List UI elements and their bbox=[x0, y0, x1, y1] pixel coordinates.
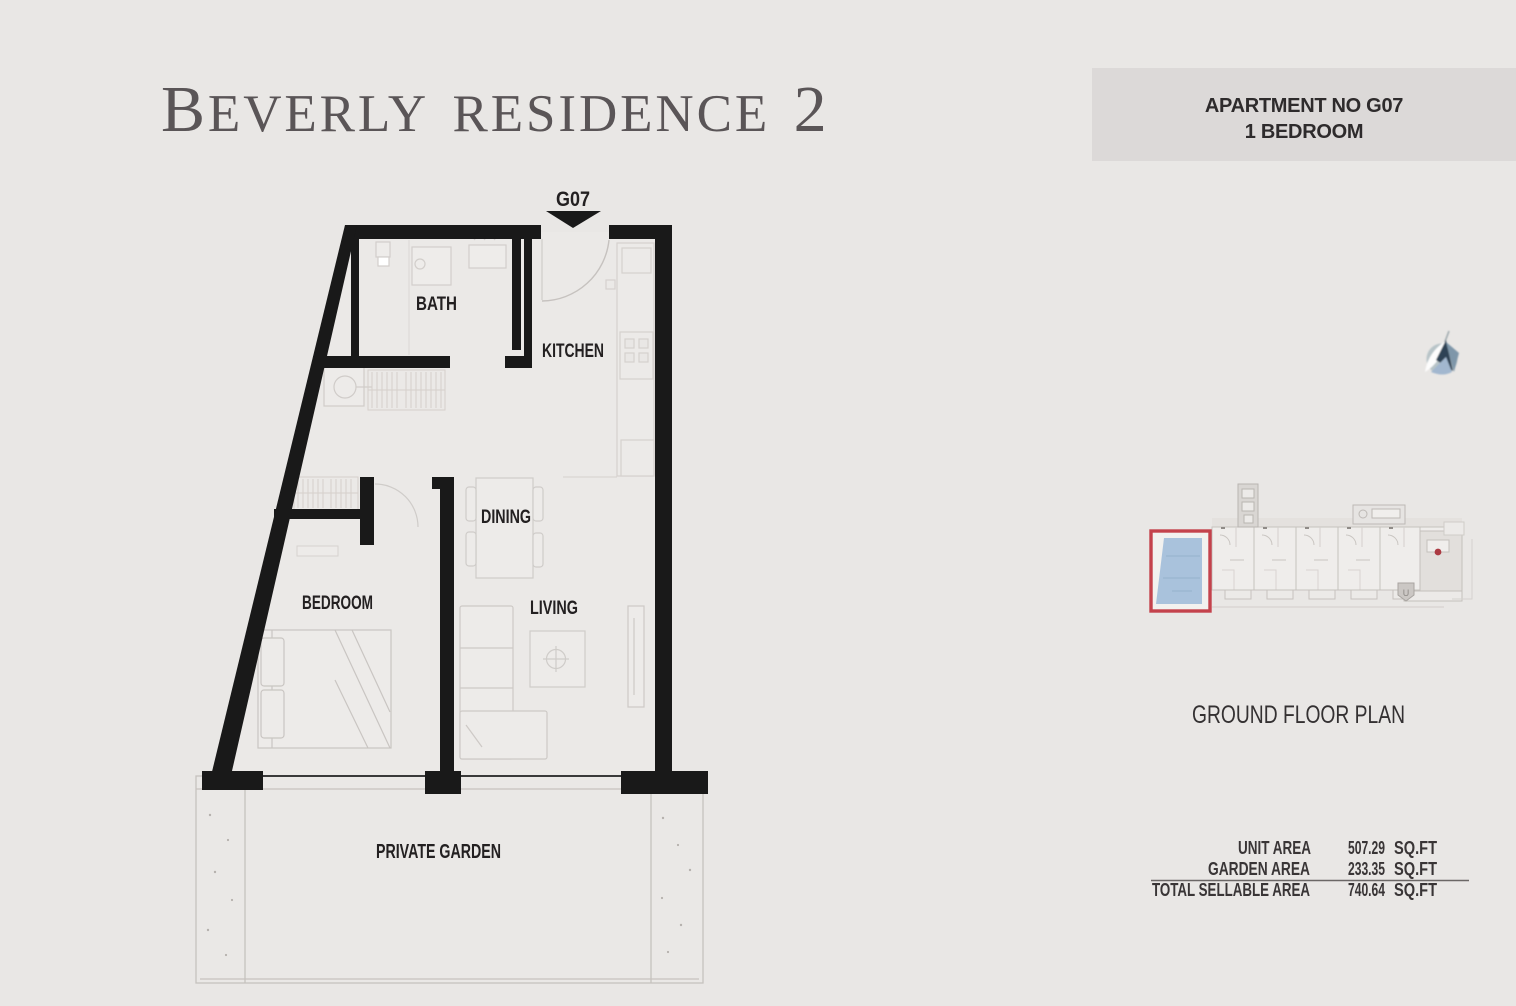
svg-text:PRIVATE GARDEN: PRIVATE GARDEN bbox=[376, 841, 501, 863]
svg-text:SQ.FT: SQ.FT bbox=[1394, 838, 1437, 858]
svg-text:SQ.FT: SQ.FT bbox=[1394, 859, 1437, 879]
svg-text:233.35: 233.35 bbox=[1348, 859, 1385, 879]
svg-text:740.64: 740.64 bbox=[1348, 880, 1385, 900]
svg-text:U: U bbox=[1403, 588, 1410, 598]
svg-text:DINING: DINING bbox=[481, 507, 531, 528]
svg-text:GROUND FLOOR PLAN: GROUND FLOOR PLAN bbox=[1192, 701, 1405, 729]
svg-text:LIVING: LIVING bbox=[530, 598, 578, 619]
svg-text:UNIT AREA: UNIT AREA bbox=[1238, 838, 1311, 858]
svg-text:SQ.FT: SQ.FT bbox=[1394, 880, 1437, 900]
svg-text:TOTAL SELLABLE AREA: TOTAL SELLABLE AREA bbox=[1152, 880, 1310, 900]
svg-text:BATH: BATH bbox=[416, 294, 457, 315]
svg-text:KITCHEN: KITCHEN bbox=[542, 341, 604, 362]
svg-text:G07: G07 bbox=[556, 188, 590, 211]
svg-text:507.29: 507.29 bbox=[1348, 838, 1385, 858]
svg-text:GARDEN AREA: GARDEN AREA bbox=[1208, 859, 1310, 879]
svg-text:BEDROOM: BEDROOM bbox=[302, 593, 373, 614]
